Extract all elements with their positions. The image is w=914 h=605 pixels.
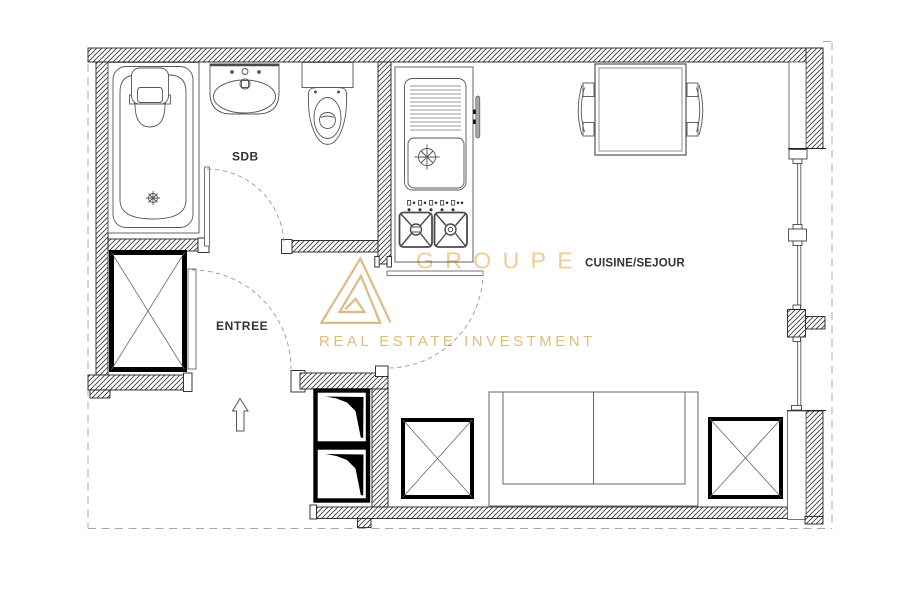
- svg-text:GROUPE: GROUPE: [416, 248, 584, 274]
- svg-text:REAL ESTATE INVESTMENT: REAL ESTATE INVESTMENT: [319, 333, 596, 350]
- svg-text:CUISINE/SEJOUR: CUISINE/SEJOUR: [585, 258, 685, 270]
- svg-text:SDB: SDB: [232, 150, 259, 164]
- svg-text:ENTREE: ENTREE: [216, 319, 268, 333]
